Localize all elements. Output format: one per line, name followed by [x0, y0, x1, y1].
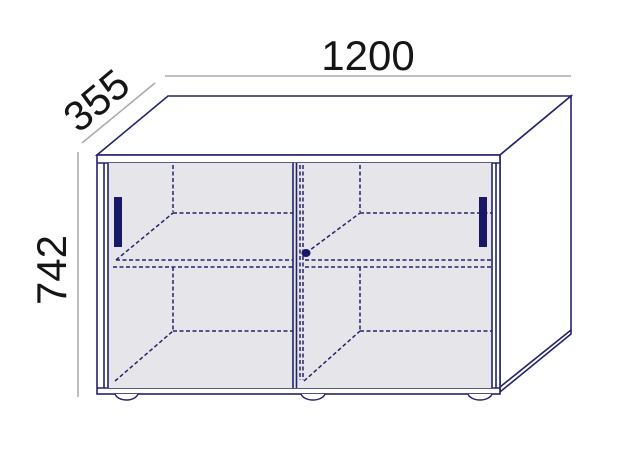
cabinet-foot-center — [301, 394, 325, 400]
cabinet-dimension-drawing: 1200 355 742 — [0, 0, 628, 450]
dimension-drawing-canvas: 1200 355 742 — [0, 0, 628, 450]
depth-dimension-label: 355 — [54, 60, 138, 141]
width-dimension-label: 1200 — [321, 32, 414, 79]
cabinet-foot-right — [468, 394, 492, 400]
height-dimension-label: 742 — [28, 235, 75, 305]
lock-icon — [302, 249, 311, 257]
cabinet-foot-left — [115, 394, 138, 400]
cabinet-body — [97, 96, 571, 394]
cabinet-feet — [115, 394, 492, 400]
left-door-handle — [114, 197, 122, 247]
right-door-handle — [479, 197, 487, 247]
cabinet-top-face — [97, 96, 571, 155]
